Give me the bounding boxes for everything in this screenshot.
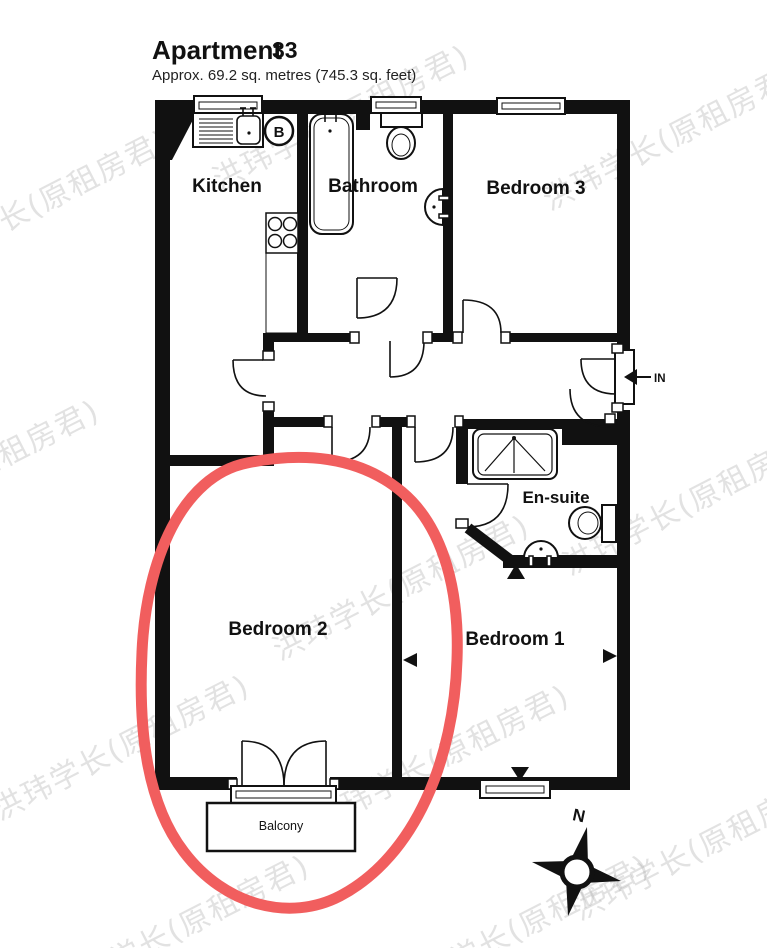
ensuite-toilet (569, 505, 616, 542)
ensuite-label: En-suite (522, 488, 589, 507)
floor-plan: Apartment 33 Approx. 69.2 sq. metres (74… (0, 0, 767, 948)
balcony: Balcony (207, 786, 355, 851)
hall-door-arc (390, 341, 424, 377)
door-arcs (233, 278, 616, 786)
drainer-lines (199, 119, 233, 143)
ensuite-door (467, 484, 508, 527)
shower (473, 429, 557, 479)
ensuite-top-wall (463, 419, 562, 429)
bedroom1-window (480, 780, 550, 798)
ensuite-bottom-wall (503, 555, 617, 568)
balcony-label: Balcony (259, 819, 304, 833)
kitchen-counter (266, 253, 298, 333)
bathroom-label: Bathroom (328, 176, 418, 197)
compass-circle (562, 857, 592, 887)
bathroom-window (371, 97, 421, 113)
floor-plan-page: 洪玮学长(原租房君) 洪玮学长(原租房君) 洪玮学长(原租房君) 洪玮学长(原租… (0, 0, 767, 948)
kitchen-label: Kitchen (192, 176, 262, 197)
balcony-french-doors (242, 741, 326, 786)
bedroom2-label: Bedroom 2 (228, 619, 327, 640)
wall-marker-triangles (403, 564, 617, 781)
ensuite-left-wall (456, 419, 468, 484)
bathroom-toilet (381, 113, 422, 159)
sink-bowl (237, 116, 260, 144)
bathtub (310, 112, 353, 234)
compass-rose: N (532, 805, 621, 916)
entrance-label: IN (654, 373, 666, 385)
sink-drain (247, 131, 250, 134)
balcony-threshold (231, 786, 336, 803)
bathroom-door (357, 278, 397, 318)
bedroom3-door (463, 300, 501, 333)
boiler: B (265, 117, 293, 145)
kitchen-window (194, 96, 262, 114)
page-title: Apartment (152, 35, 282, 65)
apartment-number: 33 (272, 37, 298, 63)
compass-north-label: N (571, 805, 587, 826)
bedroom3-window (497, 98, 565, 114)
bedroom1-wall-triangle (603, 649, 617, 663)
area-subtitle: Approx. 69.2 sq. metres (745.3 sq. feet) (152, 67, 416, 84)
bedroom3-label: Bedroom 3 (486, 178, 585, 199)
entrance: IN (612, 344, 666, 412)
bedroom1-door (415, 427, 453, 462)
hob (266, 213, 298, 333)
kitchen-door (233, 360, 266, 396)
bedroom1-label: Bedroom 1 (465, 629, 565, 650)
bathroom-bedroom3-wall (443, 114, 453, 341)
kitchen-sink-unit (193, 108, 263, 147)
bedroom2-wall-triangle (403, 653, 417, 667)
boiler-label: B (274, 124, 285, 141)
